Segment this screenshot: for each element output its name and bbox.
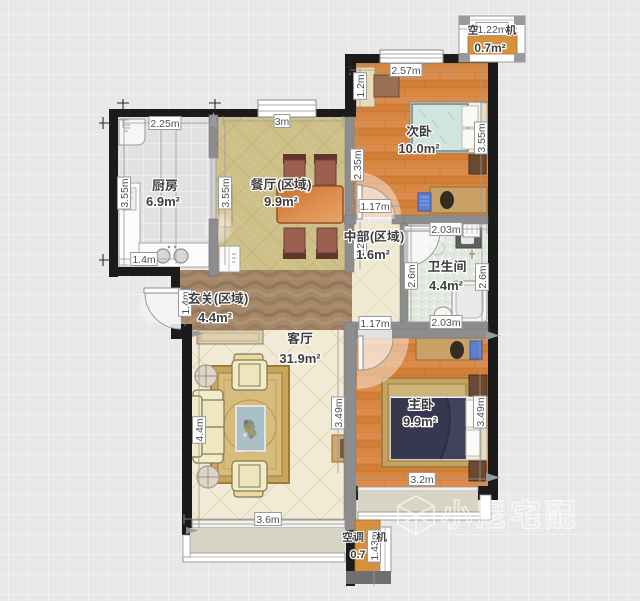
svg-text:): ) <box>307 177 311 192</box>
svg-text:3.49m: 3.49m <box>475 397 487 426</box>
svg-text:2.25m: 2.25m <box>150 118 179 130</box>
svg-text:3.55m: 3.55m <box>119 178 131 207</box>
svg-text:31.9m²: 31.9m² <box>279 351 321 366</box>
svg-text:(: ( <box>370 229 375 244</box>
svg-text:2.57m: 2.57m <box>391 65 420 77</box>
svg-text:10.0m²: 10.0m² <box>398 141 440 156</box>
svg-text:9.9m²: 9.9m² <box>264 194 299 209</box>
svg-text:1.2m: 1.2m <box>355 74 367 98</box>
svg-text:(: ( <box>277 177 282 192</box>
svg-text:2.6m: 2.6m <box>477 265 489 289</box>
svg-text:3m: 3m <box>275 116 290 128</box>
svg-text:): ) <box>244 291 248 306</box>
svg-text:0.7: 0.7 <box>350 549 365 561</box>
svg-text:3.49m: 3.49m <box>333 398 345 427</box>
svg-text:4.4m²: 4.4m² <box>429 278 464 293</box>
svg-text:1.6m²: 1.6m² <box>356 247 391 262</box>
svg-text:9.9m²: 9.9m² <box>403 414 438 429</box>
svg-text:3.55m: 3.55m <box>476 123 488 152</box>
svg-text:1.4m: 1.4m <box>132 254 156 266</box>
svg-text:1.17m: 1.17m <box>360 318 389 330</box>
svg-text:1.22m: 1.22m <box>477 24 506 36</box>
svg-text:2.6m: 2.6m <box>406 264 418 288</box>
svg-text:4.4m: 4.4m <box>194 418 206 442</box>
svg-text:0.7m²: 0.7m² <box>474 41 505 55</box>
svg-text:4.4m²: 4.4m² <box>198 310 233 325</box>
svg-text:2.03m: 2.03m <box>431 224 460 236</box>
svg-text:2.03m: 2.03m <box>431 317 460 329</box>
svg-text:): ) <box>400 229 404 244</box>
svg-text:1.17m: 1.17m <box>360 201 389 213</box>
svg-text:3.2m: 3.2m <box>410 474 434 486</box>
svg-text:3.55m: 3.55m <box>220 178 232 207</box>
svg-text:2.35m: 2.35m <box>352 150 364 179</box>
svg-text:3.6m: 3.6m <box>256 514 280 526</box>
svg-text:(: ( <box>214 291 219 306</box>
svg-text:6.9m²: 6.9m² <box>146 194 181 209</box>
